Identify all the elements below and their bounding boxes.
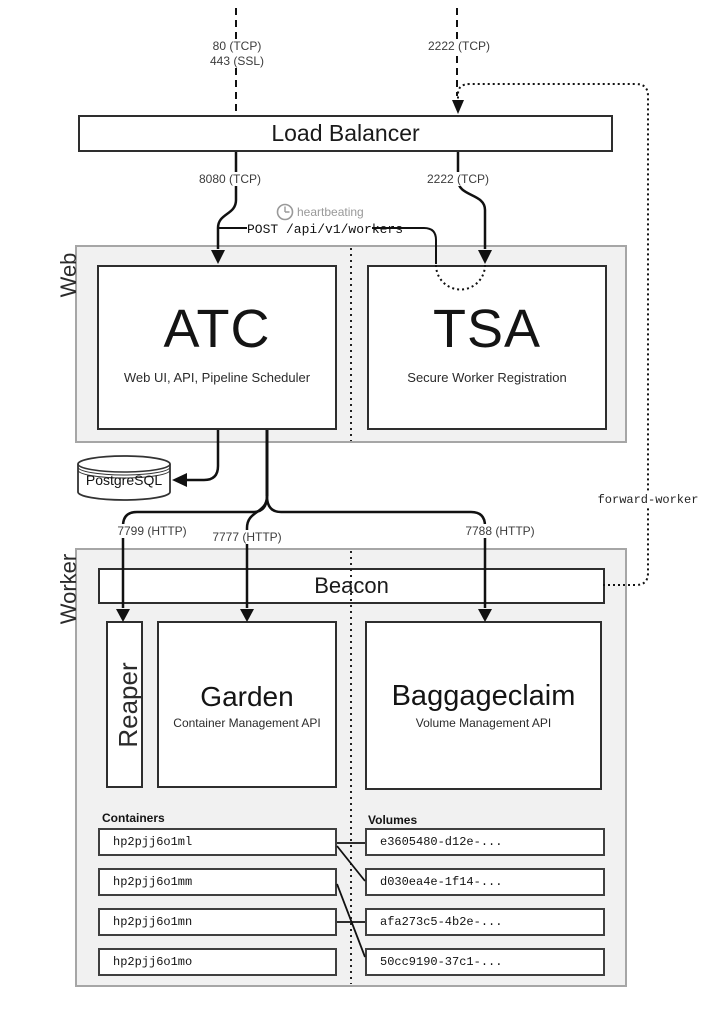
garden-title: Garden: [200, 681, 293, 713]
architecture-diagram: Load Balancer ATC Web UI, API, Pipeline …: [0, 0, 722, 1032]
volume-id: e3605480-d12e-...: [380, 835, 502, 849]
reaper-title: Reaper: [113, 625, 135, 785]
volume-id: afa273c5-4b2e-...: [380, 915, 502, 929]
container-id: hp2pjj6o1mo: [113, 955, 192, 969]
port-label-7788: 7788 (HTTP): [462, 524, 537, 538]
cylinder-ring: [78, 464, 170, 472]
volume-row: 50cc9190-37c1-...: [365, 948, 605, 976]
load-balancer-title: Load Balancer: [271, 120, 419, 147]
post-workers-label-tail: kers: [372, 222, 403, 237]
worker-section-label: Worker: [56, 544, 76, 634]
port-label-7799: 7799 (HTTP): [114, 524, 189, 538]
baggageclaim-subtitle: Volume Management API: [416, 716, 551, 730]
container-row: hp2pjj6o1mo: [98, 948, 337, 976]
lb-to-atc-line: [218, 152, 236, 249]
volume-row: e3605480-d12e-...: [365, 828, 605, 856]
container-row: hp2pjj6o1ml: [98, 828, 337, 856]
lb-to-tsa-line: [458, 152, 485, 249]
arrowhead-into-load-balancer: [452, 100, 464, 114]
post-workers-label: POST /api/v1/workers: [247, 222, 403, 237]
forward-worker-label: forward-worker: [595, 493, 702, 507]
port-label-7777: 7777 (HTTP): [209, 530, 284, 544]
volumes-heading: Volumes: [368, 813, 417, 827]
containers-heading: Containers: [102, 811, 165, 825]
port-label-https: 443 (SSL): [207, 54, 267, 68]
port-label-2222: 2222 (TCP): [424, 172, 492, 186]
port-label-8080: 8080 (TCP): [196, 172, 264, 186]
container-row: hp2pjj6o1mm: [98, 868, 337, 896]
beacon-title: Beacon: [314, 573, 389, 599]
atc-subtitle: Web UI, API, Pipeline Scheduler: [124, 370, 310, 385]
post-workers-label-masked: POST /api/v1/wor: [247, 222, 372, 237]
atc-node: ATC Web UI, API, Pipeline Scheduler: [97, 265, 337, 430]
atc-title: ATC: [164, 302, 271, 356]
tsa-title: TSA: [433, 302, 541, 356]
web-section-label: Web: [56, 235, 76, 315]
container-id: hp2pjj6o1ml: [113, 835, 192, 849]
tsa-node: TSA Secure Worker Registration: [367, 265, 607, 430]
heartbeating-label: heartbeating: [297, 205, 364, 219]
baggageclaim-title: Baggageclaim: [392, 680, 576, 713]
arrowhead-into-db: [172, 473, 187, 487]
tsa-subtitle: Secure Worker Registration: [407, 370, 566, 385]
garden-node: Garden Container Management API: [157, 621, 337, 788]
beacon-node: Beacon: [98, 568, 605, 604]
volume-id: d030ea4e-1f14-...: [380, 875, 502, 889]
container-row: hp2pjj6o1mn: [98, 908, 337, 936]
garden-subtitle: Container Management API: [173, 716, 320, 730]
container-id: hp2pjj6o1mn: [113, 915, 192, 929]
load-balancer-node: Load Balancer: [78, 115, 613, 152]
clock-icon: [278, 205, 293, 220]
database-label: PostgreSQL: [86, 472, 162, 488]
volume-row: d030ea4e-1f14-...: [365, 868, 605, 896]
volume-id: 50cc9190-37c1-...: [380, 955, 502, 969]
port-label-ssh-top: 2222 (TCP): [425, 39, 493, 53]
port-label-http: 80 (TCP): [210, 39, 265, 53]
volume-row: afa273c5-4b2e-...: [365, 908, 605, 936]
baggageclaim-node: Baggageclaim Volume Management API: [365, 621, 602, 790]
container-id: hp2pjj6o1mm: [113, 875, 192, 889]
